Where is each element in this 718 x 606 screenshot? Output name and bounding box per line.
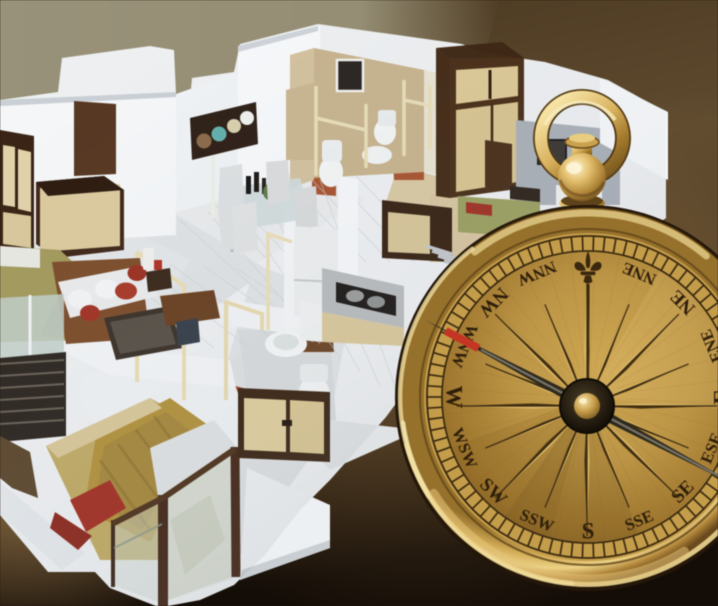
svg-text:W: W bbox=[442, 386, 467, 409]
svg-text:E: E bbox=[709, 389, 718, 404]
svg-text:S: S bbox=[582, 518, 595, 543]
